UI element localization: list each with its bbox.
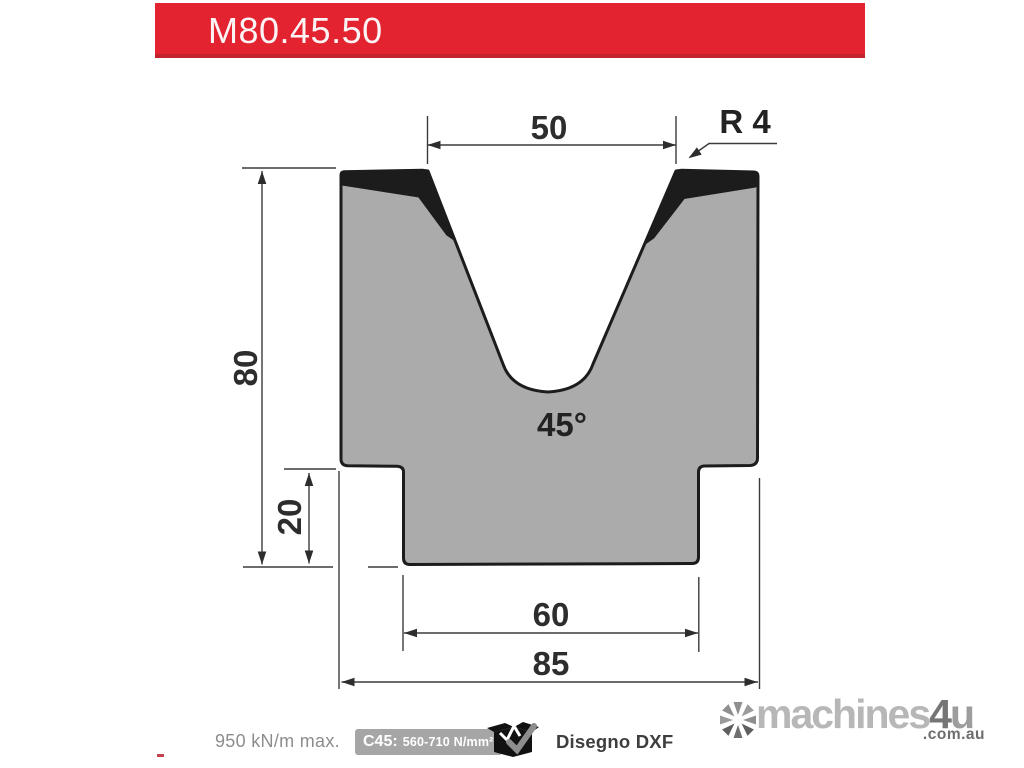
dim-label-height: 80: [227, 350, 264, 387]
material-badge: C45: 560-710 N/mm²: [355, 729, 502, 755]
dxf-box-icon: [487, 720, 541, 758]
brand-machines: machines: [756, 691, 929, 737]
arrowhead: [689, 147, 702, 158]
leader-line: [690, 144, 777, 158]
material-strength-range: 560-710 N/mm²: [403, 735, 494, 749]
arrowhead: [663, 141, 676, 150]
arrowhead: [342, 678, 355, 687]
die-body: [341, 170, 758, 564]
arrowhead: [685, 629, 698, 638]
dim-label-overall-width: 85: [533, 645, 570, 682]
dim-label-step-height: 20: [271, 499, 308, 536]
max-load-text: 950 kN/m max.: [215, 731, 340, 752]
dim-label-top-width: 50: [531, 109, 568, 146]
arrowhead: [258, 552, 267, 565]
arrowhead: [305, 551, 314, 564]
arrowhead: [305, 473, 314, 486]
asterisk-arms: [720, 702, 756, 738]
arrowhead: [428, 141, 441, 150]
dim-label-radius: R 4: [719, 103, 771, 140]
stray-red-mark: [157, 754, 164, 757]
brand-domain: .com.au: [923, 726, 985, 744]
arrowhead: [258, 171, 267, 184]
dxf-label: Disegno DXF: [556, 731, 673, 753]
machines4u-logo-icon: [719, 699, 759, 741]
dim-label-bottom-width: 60: [533, 596, 570, 633]
material-grade: C45:: [363, 733, 398, 751]
die-technical-drawing: 50 R 4 80 20 60 85 45°: [0, 0, 1024, 768]
arrowhead: [404, 629, 417, 638]
dim-label-angle: 45°: [537, 406, 587, 443]
arrowhead: [745, 678, 758, 687]
dimension-radius: [690, 144, 777, 158]
